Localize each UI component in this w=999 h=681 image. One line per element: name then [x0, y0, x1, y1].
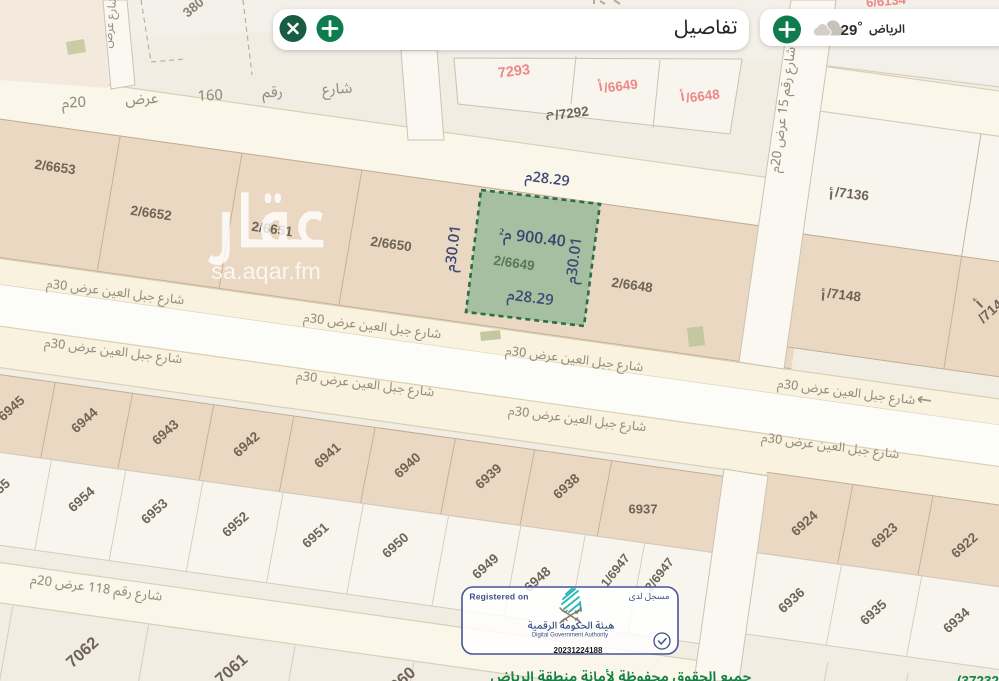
svg-text:Digital Government Authority: Digital Government Authority: [532, 633, 608, 639]
svg-text:(3723237: (3723237: [957, 674, 999, 681]
svg-text:29: 29: [841, 22, 858, 39]
svg-text:Registered on: Registered on: [469, 591, 528, 601]
svg-text:°: °: [857, 18, 862, 33]
svg-text:6937: 6937: [629, 501, 658, 516]
svg-text:sa.aqar.fm: sa.aqar.fm: [211, 258, 321, 284]
svg-text:20231224188: 20231224188: [554, 646, 603, 655]
